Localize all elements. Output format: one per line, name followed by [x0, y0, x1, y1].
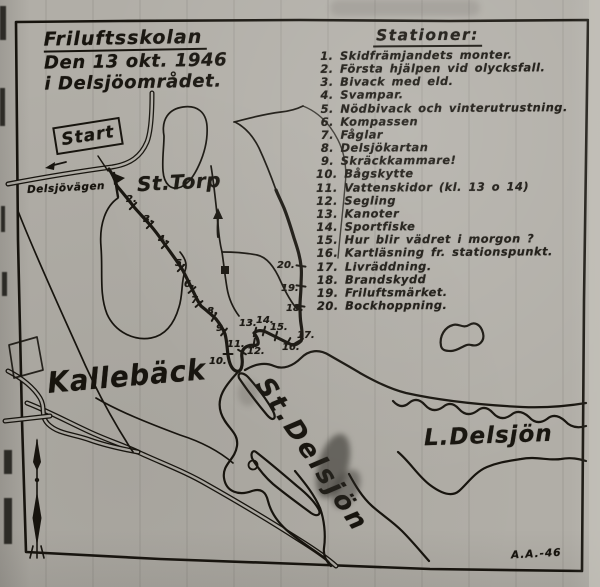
course-trail: [109, 169, 302, 371]
station-list-item: 16. Kartläsning fr. stationspunkt.: [317, 245, 569, 260]
station-number: 2.: [126, 194, 137, 205]
station-tick: [263, 327, 265, 336]
station-number: 11.: [227, 339, 245, 350]
stations-legend: Stationer: 1. Skidfrämjandets monter.2. …: [315, 24, 569, 313]
start-sign-label: Start: [60, 122, 116, 150]
station-number: 5.: [175, 258, 186, 269]
station-list-item: 20. Bockhoppning.: [317, 298, 569, 313]
title-line-1: Friluftsskolan: [43, 26, 206, 53]
station-number: 16.: [282, 342, 300, 353]
title-line-3: i Delsjöområdet.: [44, 70, 228, 94]
station-number: 15.: [270, 322, 288, 333]
station-number: 7.: [191, 295, 202, 306]
lake-small-label: L.Delsjön: [424, 421, 554, 451]
stations-heading: Stationer:: [373, 26, 482, 48]
station-number: 3.: [143, 214, 154, 225]
farm-label: St.Torp: [136, 168, 221, 196]
map-title-block: Friluftsskolan Den 13 okt. 1946 i Delsjö…: [43, 25, 227, 94]
stations-list: 1. Skidfrämjandets monter.2. Första hjäl…: [315, 48, 569, 313]
scanned-orienteering-map-page: Friluftsskolan Den 13 okt. 1946 i Delsjö…: [0, 0, 600, 587]
station-number: 17.: [297, 330, 315, 341]
station-number: 6.: [184, 279, 195, 290]
station-number: 9.: [216, 323, 227, 334]
station-number: 20.: [277, 260, 295, 271]
station-number: 10.: [209, 356, 227, 367]
building-square-icon: [221, 266, 229, 274]
station-number: 18.: [286, 303, 304, 314]
station-number: 4.: [158, 234, 169, 245]
station-number: 12.: [247, 346, 265, 357]
station-number: 13.: [239, 318, 257, 329]
station-list-item: 5. Nödbivack och vinterutrustning.: [321, 101, 568, 116]
station-number: 8.: [207, 306, 218, 317]
station-number: 19.: [281, 283, 299, 294]
north-needle-icon: [30, 438, 44, 558]
road-direction-arrow-icon: [45, 162, 66, 170]
station-tick: [297, 265, 306, 266]
trail-north-arrow-icon: [213, 208, 223, 237]
